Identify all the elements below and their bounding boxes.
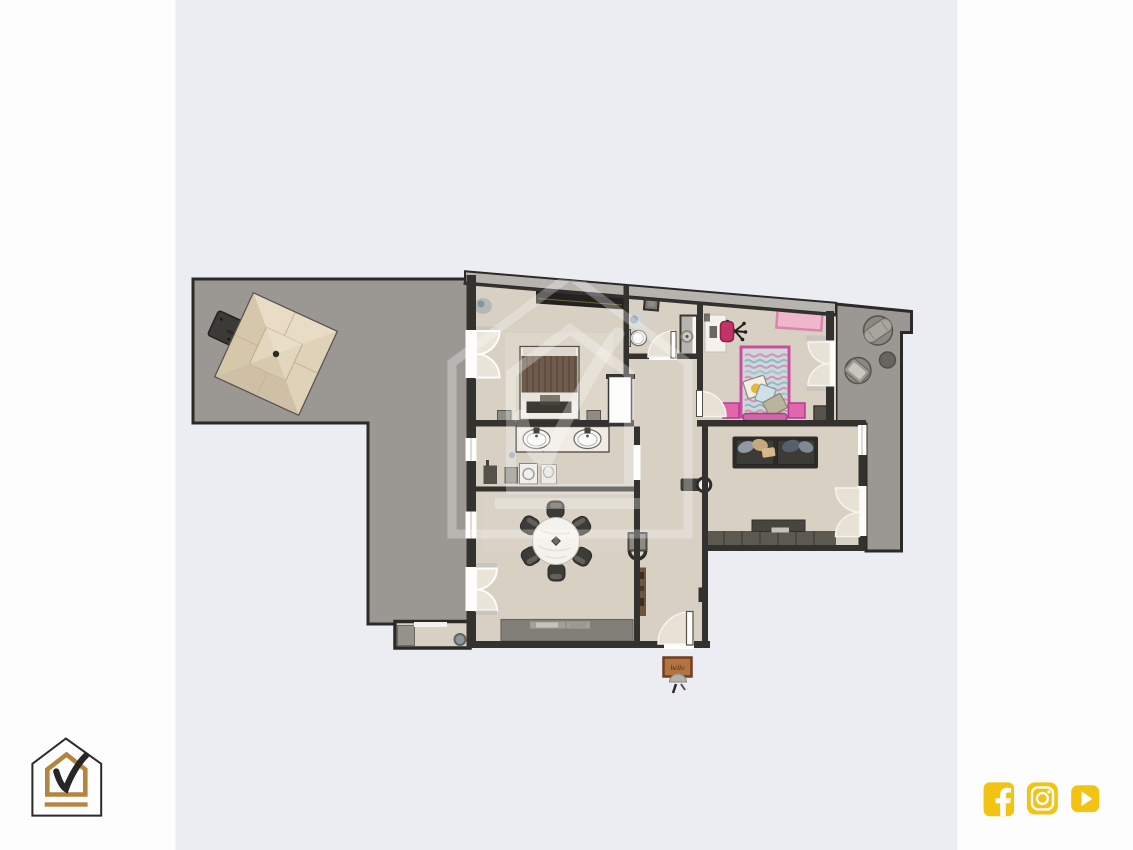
- svg-text:hello: hello: [671, 664, 685, 672]
